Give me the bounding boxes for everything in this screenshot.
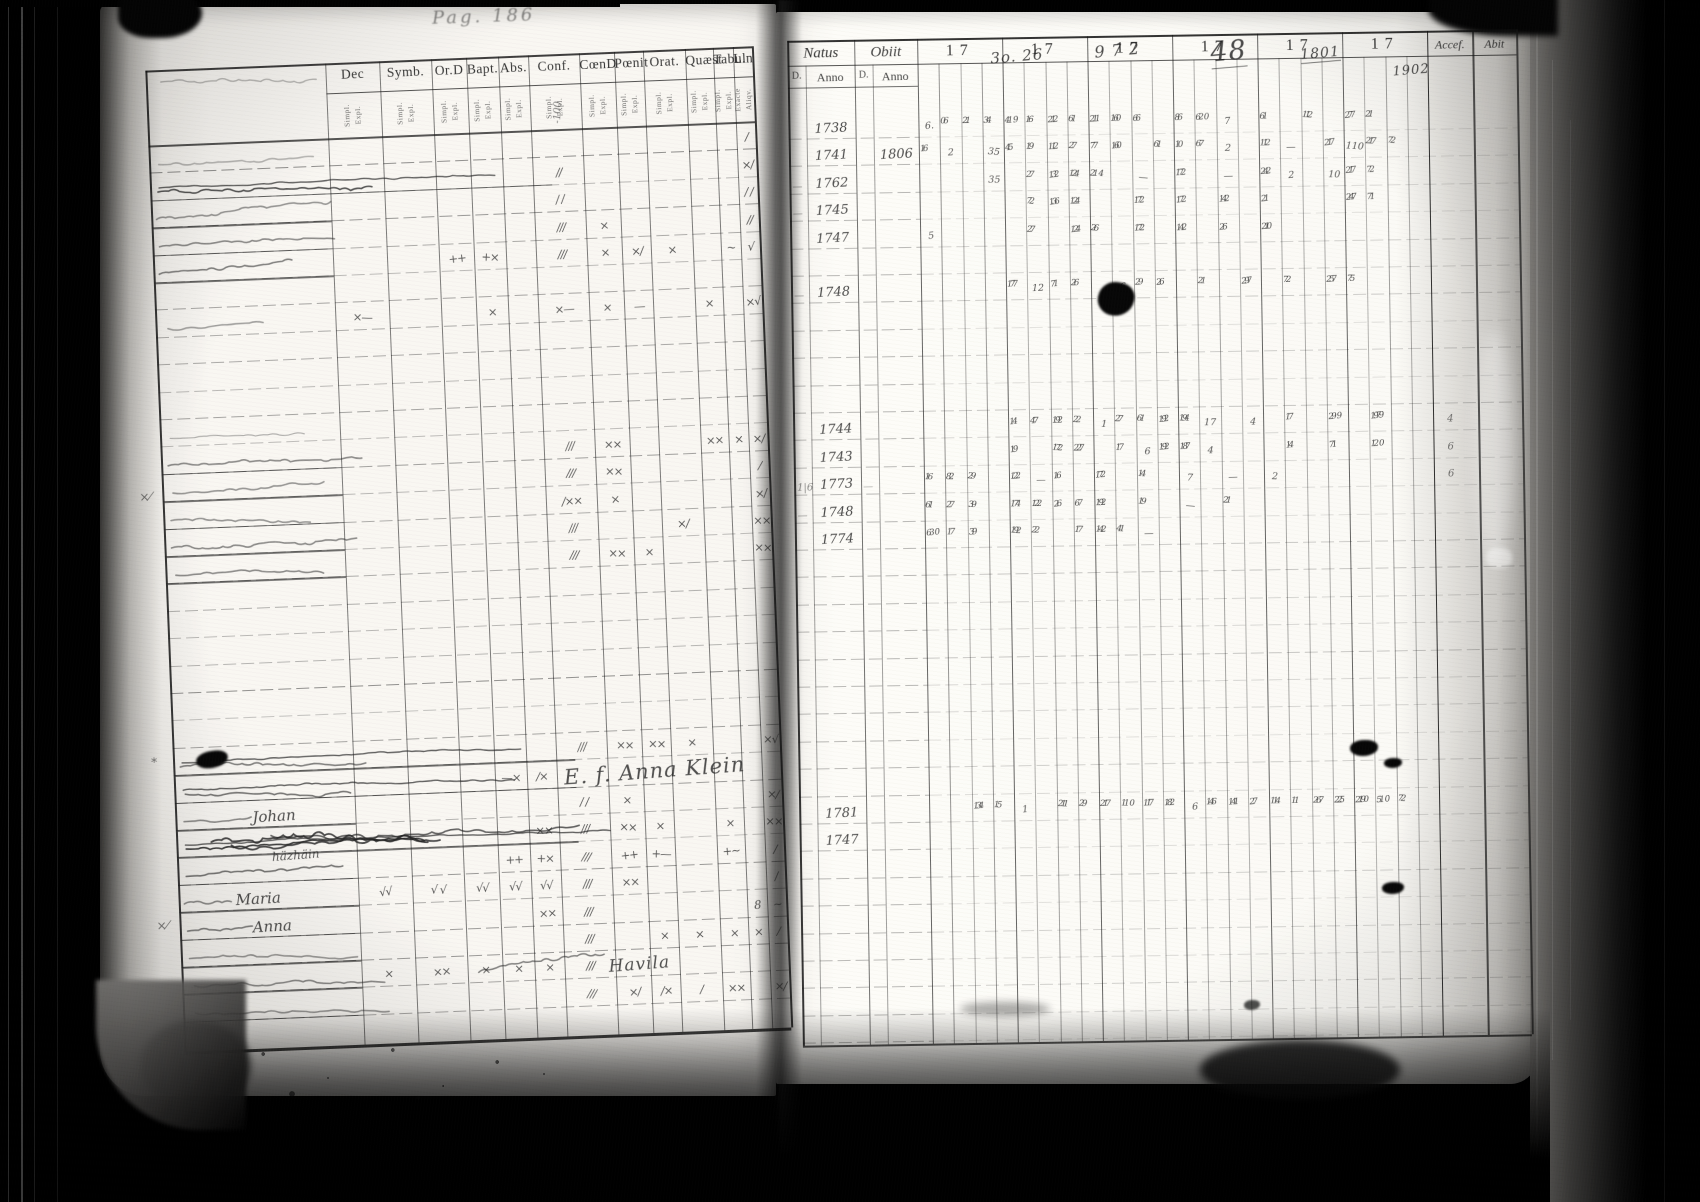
bottom-shadow (80, 1008, 1550, 1202)
film-scratch (21, 0, 23, 1202)
date-mark: 71 (1049, 279, 1069, 281)
column-line (960, 63, 976, 1043)
column-line (1257, 33, 1274, 1038)
ruled-line (801, 931, 931, 934)
cell-mark: × (687, 926, 712, 943)
natus-d-dash: — (792, 181, 802, 192)
cell-mark: ∕∕∕ (573, 849, 598, 864)
date-mark: 15 (994, 801, 1014, 802)
date-mark: 41 (1117, 525, 1137, 526)
date-mark: 29 (967, 472, 987, 473)
date-mark: 17 (1116, 443, 1136, 444)
obiit-year: 1806 (874, 146, 920, 163)
cell-mark: × (722, 925, 746, 940)
date-mark: 21 (1223, 496, 1243, 497)
date-mark: 27 (1249, 797, 1269, 799)
column-line (1151, 60, 1167, 1040)
row-name: Johan (252, 806, 296, 826)
date-mark: 121 (1047, 142, 1067, 143)
date-mark: 6 (1137, 446, 1157, 457)
cell-mark: ∕ (762, 842, 786, 856)
date-mark: 26 (1091, 224, 1111, 226)
date-mark: 177 (1007, 280, 1027, 281)
date-mark: — (1132, 171, 1153, 184)
cell-mark: ∕∕∕ (548, 219, 573, 235)
date-mark: 6 (1185, 801, 1205, 813)
cell-mark: ×√ (740, 293, 766, 310)
ruled-line (798, 739, 928, 742)
cell-mark: ×∕ (624, 243, 649, 259)
ruled-line (800, 849, 930, 852)
ruled-line (791, 274, 921, 277)
cell-mark: +~ (718, 842, 743, 858)
date-mark: 39 (968, 527, 988, 528)
date-mark: 123 (1048, 169, 1068, 171)
natus-year: 1747 (817, 832, 867, 849)
date-mark: 2 (1265, 471, 1286, 483)
cell-mark: √ (738, 239, 762, 254)
date-mark: 121 (1302, 111, 1322, 113)
film-scratch (34, 0, 35, 1202)
abiit-header: Abit (1472, 36, 1516, 52)
ruled-line (791, 301, 921, 304)
natus-year: 1748 (809, 284, 859, 301)
date-mark: 22 (1073, 416, 1093, 417)
year-annotation: 9 7 2 (1094, 39, 1141, 62)
cell-mark: ×× (604, 546, 628, 560)
margin-mark: ×⁄ (156, 918, 169, 932)
date-mark: 14 (1137, 470, 1157, 471)
cell-mark: ∕∕∕ (562, 548, 586, 562)
cell-mark: × (697, 295, 722, 310)
natus-year: 1745 (807, 202, 857, 219)
ruled-line (797, 685, 927, 688)
ruled-line (792, 356, 922, 359)
cell-mark: × (507, 962, 531, 976)
date-mark: 19 (1010, 444, 1030, 446)
date-mark: 67 (1196, 140, 1216, 141)
cell-mark: ∕∕∕ (572, 821, 597, 837)
column-line (1342, 32, 1359, 1037)
date-mark: 211 (1058, 800, 1078, 801)
cell-mark: ×× (615, 820, 640, 835)
cell-mark: ∕∕ (737, 212, 761, 227)
date-mark: 419 (1004, 116, 1024, 117)
date-mark: 224 (1260, 166, 1280, 168)
date-mark: 6. (919, 120, 940, 132)
date-mark: 1 (1015, 803, 1036, 816)
obiit-label: Obiit (854, 44, 917, 62)
date-mark: 1799 (1370, 411, 1390, 413)
column-line (1172, 35, 1189, 1040)
date-mark: 71 (1328, 439, 1348, 441)
ruled-line (789, 164, 919, 167)
natus-year: 1774 (813, 531, 863, 548)
cell-mark: +× (533, 851, 557, 865)
date-mark: 7 (1217, 115, 1238, 127)
date-mark: 4 (1243, 417, 1263, 428)
natus-year: 1762 (807, 175, 857, 192)
column-line (1427, 31, 1444, 1036)
cell-mark: × (594, 300, 618, 315)
natus-year: 1748 (812, 503, 862, 520)
cell-mark: × (480, 304, 505, 319)
date-mark: 29 (1079, 800, 1099, 801)
date-mark: 47 (1030, 417, 1050, 418)
natus-year: 1743 (811, 449, 861, 466)
date-mark: 274 (1346, 192, 1366, 194)
cell-mark: ×∕ (746, 430, 771, 445)
date-mark: 26 (1219, 222, 1239, 224)
date-mark: 72 (1387, 137, 1407, 139)
date-mark: 120 (1371, 439, 1391, 440)
margin-mark: ×⁄ (139, 490, 152, 504)
date-mark: — (1281, 142, 1301, 153)
ruled-line (796, 630, 926, 633)
ruled-line (794, 493, 924, 496)
ruled-line (798, 712, 928, 715)
film-scratch (1664, 0, 1665, 1202)
date-mark: 61 (1259, 112, 1279, 113)
date-mark: 106 (1111, 141, 1131, 143)
cell-mark: ×∕ (760, 787, 784, 802)
column-line (1236, 59, 1252, 1039)
natus-year: 1781 (817, 805, 867, 822)
natus-label: Natus (787, 45, 854, 63)
date-mark: 221 (1047, 115, 1067, 117)
natus-d-dash: — (793, 209, 803, 220)
ruled-line (802, 959, 932, 962)
ruled-line (800, 876, 930, 879)
cell-mark: —× (499, 770, 523, 784)
date-mark: 14 (1009, 417, 1029, 419)
cell-mark: ×× (724, 980, 749, 995)
cell-mark: ×× (644, 737, 668, 751)
date-mark: 10 (1324, 169, 1344, 181)
cell-mark: ×√ (758, 732, 782, 746)
ruled-line (793, 438, 923, 441)
cell-mark: ++ (616, 846, 641, 863)
column-line (1194, 59, 1210, 1039)
cell-mark: ×× (749, 513, 773, 527)
column-line (1045, 62, 1061, 1042)
microfilm-scan: Pag. 186 DecSimpl.Expl.Symb.Simpl.Expl.O… (0, 0, 1700, 1202)
d-sublabel: D. (855, 69, 873, 80)
ruled-line (790, 219, 920, 222)
cell-mark: × (377, 967, 401, 982)
cell-mark: +— (648, 846, 672, 861)
natus-year: 1738 (806, 120, 856, 137)
date-mark: 61 (925, 501, 945, 502)
date-mark: 163 (1048, 197, 1068, 199)
natus-d-dash: 1|6 (797, 483, 813, 494)
cell-mark: × (473, 962, 498, 978)
date-mark: 127 (1176, 195, 1196, 197)
cell-mark: ∕∕∕ (558, 466, 582, 480)
date-mark: 122 (1010, 472, 1030, 473)
cell-mark: ∕× (654, 983, 679, 998)
cell-mark: ∕∕∕ (579, 986, 604, 1001)
date-mark: 275 (1326, 275, 1346, 276)
natus-year: 1773 (812, 476, 862, 493)
date-mark: 66 (1132, 113, 1152, 115)
date-mark: 171 (1143, 799, 1163, 800)
accessit-mark: 4 (1447, 414, 1454, 425)
column-line (1472, 30, 1489, 1035)
cell-mark: ×— (350, 310, 374, 325)
cell-mark: ∕ (689, 981, 714, 996)
cell-mark: ×× (535, 905, 560, 921)
ruled-line (799, 767, 929, 770)
date-mark: 67 (1074, 498, 1094, 499)
date-mark: 16 (920, 144, 940, 145)
date-mark: 4 (1201, 445, 1221, 456)
column-line (1130, 60, 1146, 1040)
column-line (917, 39, 934, 1044)
anno-sublabel: Anno (873, 69, 918, 85)
date-mark: 143 (973, 801, 993, 802)
date-mark: 26 (1053, 498, 1073, 500)
cell-mark: ×× (532, 823, 556, 838)
date-mark: 29 (1134, 278, 1154, 279)
cell-mark: ×— (551, 301, 576, 317)
date-mark: 277 (1344, 110, 1364, 112)
cell-mark: ∕ ∕ (736, 184, 761, 199)
cell-mark: ×× (612, 738, 636, 752)
row-name: Anna (252, 916, 292, 936)
date-mark: 27 (1069, 142, 1089, 143)
year-annotation: 1801 (1300, 44, 1341, 64)
cell-mark: ∕ (747, 458, 772, 473)
cell-mark: √√ (534, 878, 558, 892)
obiit-d-dash: — (863, 482, 873, 493)
year-annotation: 3o. 26 (990, 45, 1044, 67)
date-mark: 142 (1069, 197, 1089, 198)
natus-d-dash: — (794, 291, 804, 302)
natus-year: 1744 (811, 421, 861, 438)
date-mark: 7 (1180, 472, 1201, 484)
date-mark: 620 (1196, 113, 1216, 114)
date-mark: 16 (1052, 471, 1072, 473)
cell-mark: ∕∕∕ (576, 904, 601, 919)
date-mark: 22 (1032, 526, 1052, 527)
cell-mark: × (647, 819, 671, 834)
column-line (981, 63, 997, 1043)
date-mark: 86 (1174, 113, 1194, 114)
cell-mark: ×× (702, 432, 727, 448)
ruled-line (802, 986, 932, 989)
date-mark: 129 (1158, 414, 1178, 416)
date-mark: 27 (1115, 415, 1135, 416)
date-mark: — (1222, 471, 1243, 483)
column-line (1300, 58, 1316, 1038)
date-mark: 127 (1133, 196, 1153, 197)
date-mark: 35 (984, 174, 1004, 185)
cell-mark: ++ (444, 250, 469, 267)
date-mark: 279 (1241, 276, 1261, 278)
cell-mark: × (636, 545, 660, 559)
year-group-header: 17 (1342, 35, 1427, 54)
ruled-line (796, 603, 926, 606)
cell-mark: ×∕ (622, 983, 647, 999)
column-line (939, 63, 955, 1043)
film-scratch (8, 0, 9, 1202)
cell-mark: ∕ (734, 130, 758, 145)
cell-mark: +× (478, 249, 503, 264)
year-annotation: 48 (1209, 34, 1248, 69)
accessit-mark: 6 (1448, 469, 1455, 480)
ruled-line (799, 794, 929, 797)
cell-mark: ×× (601, 464, 625, 478)
cell-mark: × (659, 241, 684, 258)
date-mark: 72 (1027, 197, 1047, 198)
cell-mark: ∕∕∕ (557, 438, 582, 454)
natus-d-dash: — (797, 510, 807, 521)
date-mark: — (1180, 499, 1201, 511)
date-mark: 14 (1286, 440, 1306, 441)
date-mark: 71 (1367, 192, 1387, 193)
date-mark: 12 (1028, 283, 1048, 295)
film-scratch (57, 0, 58, 1202)
date-mark: 61 (1153, 141, 1173, 142)
column-line (1516, 29, 1533, 1034)
date-mark: 510 (1376, 795, 1396, 797)
date-mark: 77 (1090, 142, 1110, 143)
date-mark: 19 (1138, 497, 1158, 498)
cell-mark: ×∕ (747, 485, 772, 502)
date-mark: 124 (1176, 223, 1196, 224)
date-mark: 271 (1345, 165, 1365, 167)
cell-mark: × (679, 734, 704, 750)
date-mark: 2910 (1355, 795, 1375, 796)
date-mark: 2 (1217, 143, 1238, 155)
date-mark: 16 (925, 473, 945, 474)
column-line (1364, 57, 1380, 1037)
cell-mark: ×∕ (734, 156, 759, 172)
left-register-table: DecSimpl.Expl.Symb.Simpl.Expl.Or.DSimpl.… (120, 37, 820, 1073)
date-mark: 252 (1334, 796, 1354, 797)
column-line (1406, 56, 1422, 1036)
date-mark: 110 (1345, 141, 1366, 153)
date-mark: 45 (1005, 143, 1025, 145)
date-mark: 5 (921, 229, 942, 242)
date-mark: 17 (1075, 526, 1095, 527)
ruled-line (796, 575, 926, 578)
cell-mark: × (718, 816, 742, 830)
cell-mark: √√ (470, 881, 494, 895)
column-line (1066, 61, 1082, 1041)
column-line (1279, 58, 1295, 1038)
margin-mark: ∗ (150, 753, 159, 767)
cell-mark: ∕∕∕ (578, 959, 602, 974)
cell-mark: × (651, 928, 676, 944)
date-mark: 201 (1261, 221, 1281, 223)
natus-year: 1747 (808, 229, 858, 246)
ruled-line (793, 383, 923, 386)
date-mark: 61 (1137, 415, 1157, 417)
ruled-line (797, 657, 927, 660)
date-mark: 142 (1069, 169, 1089, 170)
cell-mark: ∕ ∕ (571, 794, 596, 809)
right-register-table: NatusObiit171717171717Accef.AbitD.D.Anno… (772, 14, 1552, 1066)
cell-mark: ∕∕∕ (577, 931, 602, 946)
accessit-mark: 6 (1447, 441, 1454, 452)
date-mark: 129 (1011, 526, 1031, 528)
cell-mark: × (538, 960, 562, 974)
anno-sublabel: Anno (806, 70, 855, 86)
cell-mark: ∕∕∕ (549, 246, 574, 261)
cell-mark: × (592, 244, 617, 260)
cell-mark: × (614, 793, 638, 808)
cell-mark: ×× (600, 437, 624, 451)
date-mark: 35 (983, 146, 1004, 159)
d-sublabel: D. (788, 71, 806, 82)
column-line (1002, 37, 1019, 1042)
date-mark: 114 (1228, 797, 1248, 798)
date-mark: — (1031, 475, 1051, 486)
cell-mark: ×∕ (671, 516, 696, 531)
date-mark: 127 (1095, 470, 1115, 471)
date-mark: 72 (1398, 795, 1418, 796)
cell-mark: ∕∕∕ (560, 520, 585, 536)
date-mark: 128 (1164, 798, 1184, 799)
date-mark: 1 (1094, 419, 1114, 431)
date-mark: 127 (1052, 444, 1072, 446)
cell-mark: — (626, 298, 651, 313)
date-mark: 21 (1198, 277, 1218, 278)
cell-mark: ++ (502, 852, 527, 867)
cell-mark: √ √ (426, 883, 450, 897)
date-mark: 142 (1070, 224, 1090, 226)
date-mark: 26 (1156, 277, 1176, 279)
cell-mark: ∕∕ (546, 164, 571, 180)
date-mark: — (1218, 170, 1238, 182)
date-mark: 271 (1324, 138, 1344, 140)
year-annotation: 1902 (1392, 61, 1430, 79)
column-line (1109, 61, 1125, 1041)
column-line (1024, 62, 1040, 1042)
date-mark: 127 (1175, 168, 1195, 169)
date-mark: 2 (1281, 169, 1302, 181)
cell-mark: ∕∕∕ (569, 739, 594, 755)
date-mark: 129 (1158, 442, 1178, 443)
ruled-line (793, 411, 923, 414)
date-mark: 2 (941, 147, 962, 159)
date-mark: — (1138, 528, 1158, 540)
date-mark: 630 (926, 527, 946, 529)
date-mark: 127 (1134, 224, 1154, 225)
cell-mark: ∕∕∕ (574, 876, 599, 891)
natus-year: 1741 (807, 147, 857, 164)
accessit-header: Accef. (1427, 37, 1472, 53)
date-mark: 299 (1328, 412, 1348, 414)
cell-mark: × (591, 217, 617, 234)
title-scribble (180, 6, 480, 54)
ruled-line (788, 86, 918, 89)
cell-mark: × (602, 491, 627, 507)
date-mark: 211 (1089, 114, 1109, 115)
date-mark: 124 (1218, 194, 1238, 195)
date-mark: 272 (1073, 444, 1093, 445)
cell-mark: ∕× (530, 769, 554, 783)
ruled-line (792, 329, 922, 332)
cell-mark: ×× (617, 874, 642, 889)
date-mark: 10 (1175, 141, 1195, 142)
column-line (1215, 59, 1231, 1039)
cell-mark: ∕×× (559, 493, 584, 509)
date-mark: 17 (1285, 413, 1305, 414)
column-line (872, 64, 888, 1044)
